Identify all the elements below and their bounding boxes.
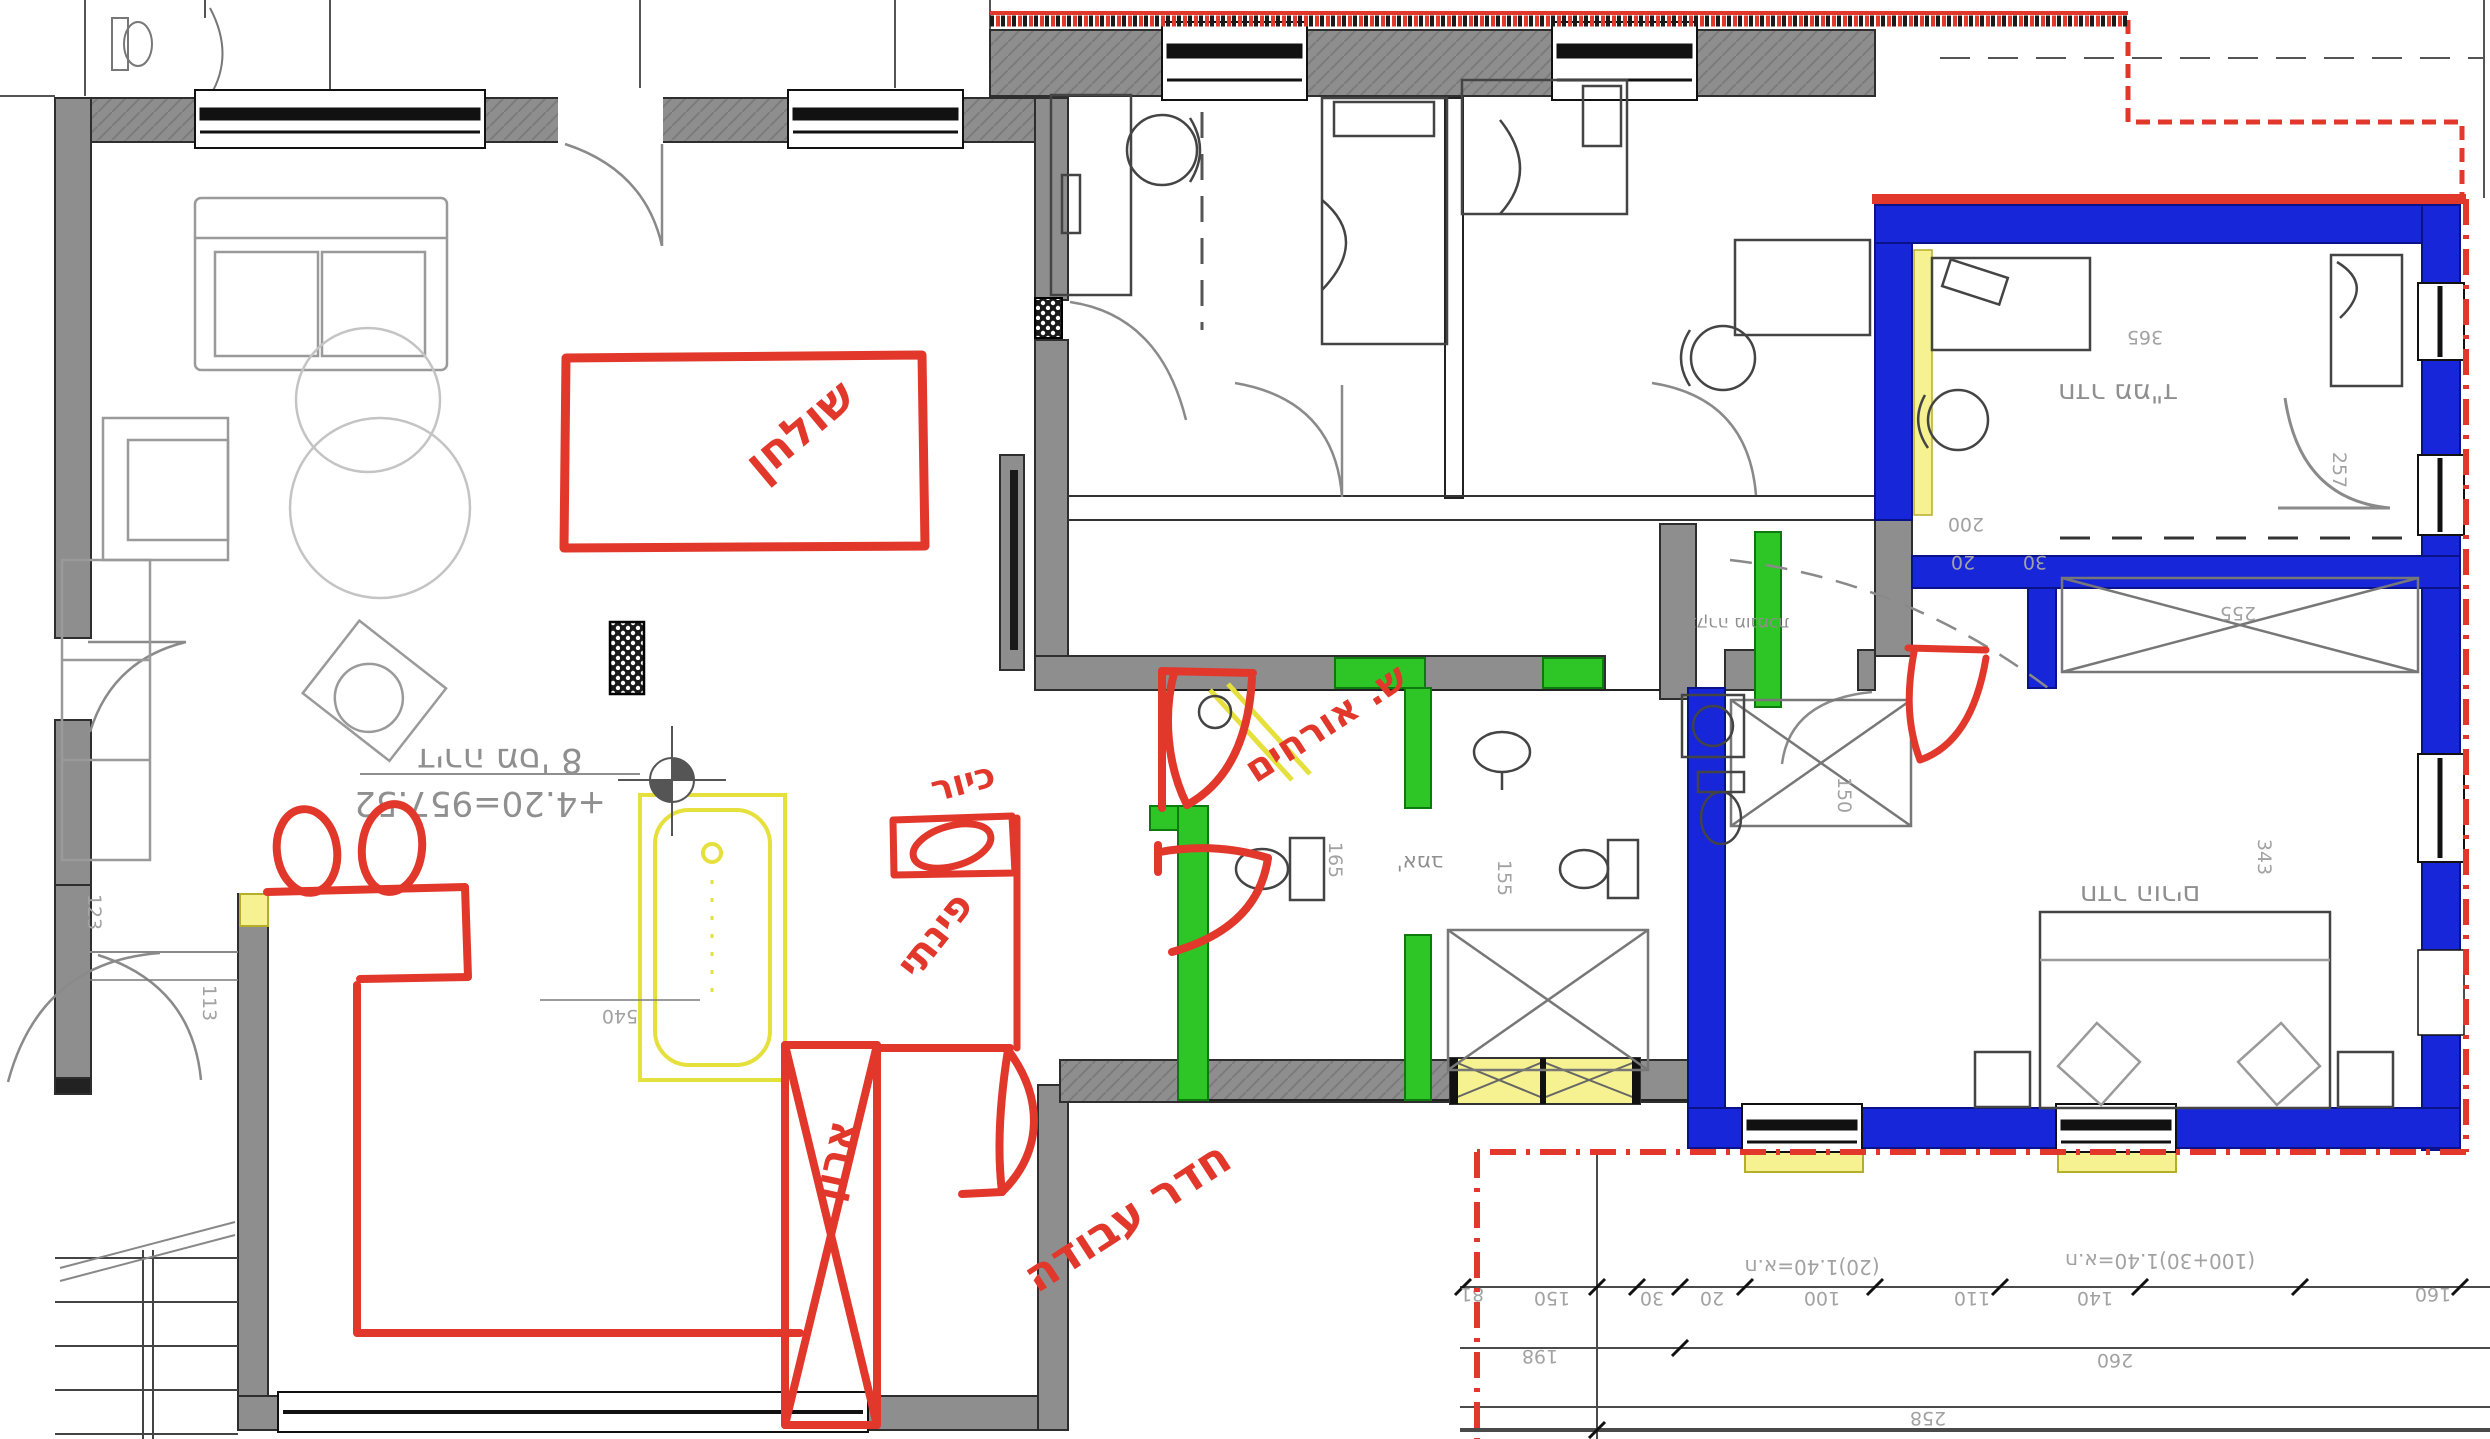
room-label-mamad: חדר ממ"ד xyxy=(2058,377,2178,408)
bed-mamad xyxy=(2331,255,2402,386)
markup-table: שולחן xyxy=(564,355,925,548)
exterior-walls-gray xyxy=(55,30,1912,1430)
dim-365: 365 xyxy=(2127,326,2163,348)
markup-mamad-door xyxy=(1908,648,1986,760)
sink-guest xyxy=(1199,696,1231,728)
blue-safe-room-walls xyxy=(1688,205,2460,1150)
toilet-bath xyxy=(1560,840,1638,898)
dimension-leader-lines xyxy=(90,980,1740,1000)
markup-closet-label: ארון xyxy=(803,1116,865,1204)
rug-circle-1 xyxy=(296,328,440,472)
red-markup: שולחן ארון חדר עבודה כיור פינתי xyxy=(267,355,1986,1425)
window-note-b: ח.א=1.40(100+30) xyxy=(2065,1249,2255,1273)
window-sill-yellow-bath xyxy=(1450,1058,1640,1104)
dim-255: 255 xyxy=(2220,602,2256,624)
ceiling-note-label: תקרה מונמכת xyxy=(1685,613,1789,633)
dim-30a: 30 xyxy=(2023,551,2047,573)
dim-198: 198 xyxy=(1522,1345,1558,1367)
rug-dotted xyxy=(610,622,644,694)
dim-140: 140 xyxy=(2077,1287,2113,1309)
markup-sink-style-label: פינתי xyxy=(888,883,983,986)
window-bedroom2 xyxy=(1552,22,1697,100)
dim-540: 540 xyxy=(602,1005,638,1027)
armchair-left xyxy=(103,418,228,560)
sink-bath xyxy=(1474,732,1530,790)
dim-123: 123 xyxy=(83,894,105,930)
window-living-left xyxy=(195,90,485,148)
staircase xyxy=(55,1222,238,1439)
dim-258: 258 xyxy=(1910,1407,1946,1429)
interior-thin-walls xyxy=(90,98,1875,1100)
dim-110: 110 xyxy=(1954,1287,1990,1309)
dim-30: 30 xyxy=(1640,1287,1664,1309)
toilet-guest xyxy=(1236,838,1324,900)
dim-343: 343 xyxy=(2253,839,2275,875)
floor-plan-drawing: דירה מס' 8 +4.20=957.52 חדר ממ"ד חדר הור… xyxy=(0,0,2490,1439)
closet-mamad xyxy=(2062,578,2418,672)
nightstand-right xyxy=(2338,1052,2393,1107)
bed-parents xyxy=(2040,912,2330,1108)
window-bottom-left xyxy=(278,1392,868,1432)
dim-165: 165 xyxy=(1324,842,1346,878)
elevation-marker xyxy=(618,726,726,836)
bathtub-yellow xyxy=(640,795,785,1080)
dim-20: 20 xyxy=(1700,1287,1724,1309)
windows xyxy=(195,22,1697,1432)
markup-sink: כיור פינתי xyxy=(888,754,1017,1048)
window-bedroom1 xyxy=(1162,22,1307,100)
dim-150: 150 xyxy=(1534,1287,1570,1309)
window-note-a: ח.א=1.40(20) xyxy=(1744,1255,1879,1279)
bath-label: אמב' xyxy=(1397,851,1443,875)
red-hatch-top-border xyxy=(990,13,2128,21)
yellow-post xyxy=(240,894,268,926)
markup-door-workroom xyxy=(962,1050,1034,1194)
wall-hatch-pad xyxy=(1035,298,1062,338)
desk-mamad xyxy=(1918,258,2090,450)
desk-bedroom1 xyxy=(1051,95,1200,295)
desk-bedroom2 xyxy=(1681,240,1870,390)
dim-155: 155 xyxy=(1493,860,1515,896)
shower-tray xyxy=(1448,930,1648,1070)
room-label-parents: חדר הורים xyxy=(2080,879,2200,910)
dim-100: 100 xyxy=(1804,1287,1840,1309)
dim-20a: 20 xyxy=(1951,551,1975,573)
dim-257: 257 xyxy=(2328,452,2350,488)
yellow-strip-mamad xyxy=(1914,250,1932,515)
dim-150a: 150 xyxy=(1833,777,1855,813)
nightstand-left xyxy=(1975,1052,2030,1107)
dim-160: 160 xyxy=(2415,1283,2451,1305)
closet-parents xyxy=(1731,700,1911,826)
balcony-door-opening xyxy=(558,96,663,144)
blue-wall-windows xyxy=(1742,283,2464,1152)
floor-plan-page: דירה מס' 8 +4.20=957.52 חדר ממ"ד חדר הור… xyxy=(0,0,2490,1439)
bed-bedroom1 xyxy=(1322,98,1447,344)
dim-260: 260 xyxy=(2097,1349,2133,1371)
rug-circle-2 xyxy=(290,418,470,598)
dim-81: 81 xyxy=(1460,1283,1484,1305)
dim-200: 200 xyxy=(1948,513,1984,535)
markup-table-label: שולחן xyxy=(734,368,865,490)
armchair-rotated xyxy=(303,621,446,761)
markup-kitchen-counter xyxy=(267,801,800,1333)
window-living-right xyxy=(788,90,963,148)
markup-sink-label: כיור xyxy=(926,754,999,810)
dim-113: 113 xyxy=(198,985,220,1021)
red-dash-top-corner xyxy=(2128,20,2462,196)
markup-closet-xbox: ארון xyxy=(785,1045,1010,1425)
